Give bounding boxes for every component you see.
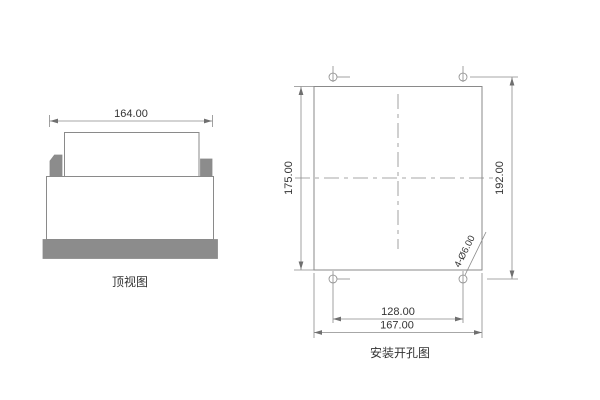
dimension-value-width: 164.00 [114,108,148,120]
mounting-hole-top-right [459,66,467,82]
arrowhead-down [510,271,515,279]
arrowhead-left [50,119,58,124]
dimension-top-width: 164.00 [50,108,213,127]
top-view-label: 顶视图 [112,274,148,289]
right-mounting-clip [201,159,213,177]
left-mounting-clip [50,155,62,177]
arrowhead-right [474,330,482,335]
arrowhead-down [299,262,304,270]
dimension-value-hole-span-vertical: 192.00 [494,161,506,195]
cutout-view: 175.00 192.00 4-Ø6.00 128.00 [283,66,518,360]
mounting-hole-bottom-right [459,271,467,323]
technical-drawing-canvas: 164.00 顶视图 [0,0,600,400]
arrowhead-up [510,78,515,86]
cutout-view-label: 安装开孔图 [370,345,430,360]
arrowhead-up [299,87,304,95]
device-top-cap [65,133,200,177]
top-view: 164.00 顶视图 [43,108,218,289]
dimension-value-panel-width: 167.00 [380,320,414,332]
mounting-hole-top-left [329,66,350,82]
dimension-value-panel-height: 175.00 [283,161,295,195]
drawing-sheet: 164.00 顶视图 [0,0,600,400]
dimension-value-hole-span-horizontal: 128.00 [381,306,415,318]
arrowhead-left [333,317,341,322]
arrowhead-left [314,330,322,335]
arrowhead-right [455,317,463,322]
device-body [47,177,214,240]
mounting-hole-bottom-left [329,271,350,323]
device-base-plate [43,240,218,259]
arrowhead-right [204,119,212,124]
